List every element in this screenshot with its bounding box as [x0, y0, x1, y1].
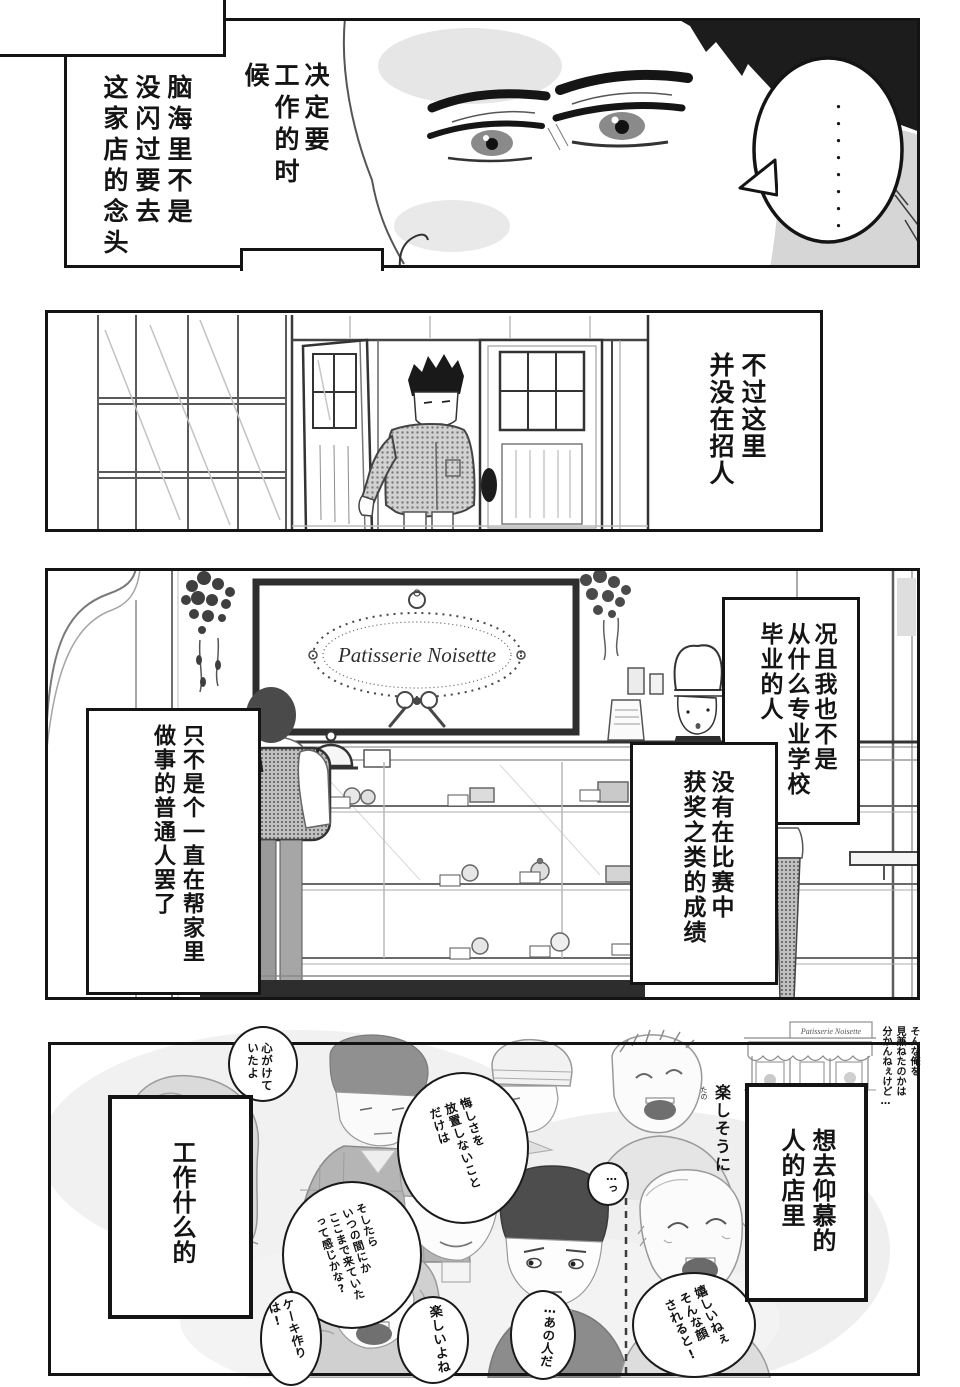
wall-frame-2: [650, 674, 663, 694]
hanging-plant-left: [181, 571, 235, 692]
furigana-tano: たの: [698, 1086, 708, 1106]
chef-figure: [674, 645, 722, 744]
manga-page: { "colors": { "ink": "#141414", "paper":…: [0, 0, 960, 1378]
storefront-sign-text: Patisserie Noisette: [800, 1027, 862, 1036]
shop-sign-board: Patisserie Noisette: [256, 582, 576, 732]
wall-frame-1: [628, 668, 644, 694]
counter-box: [364, 750, 390, 767]
narration-box-admire: 想去仰慕的 人的店里: [775, 1128, 837, 1268]
patisserie-sign-text: Patisserie Noisette: [337, 643, 496, 667]
aside-text-laughing: 楽しそうに: [707, 1084, 731, 1184]
speech-bubble-tsu-text: …っ: [600, 1170, 618, 1200]
narration-box-decided: 决定要 工作的时候: [270, 62, 330, 212]
narration-box-thought: 脑海里不是 没闪过要去 这家店的念头: [98, 74, 194, 264]
panel-1-notch-cutout: [240, 248, 384, 271]
speech-bubble-mindful-text: 心がけて いたよ: [244, 1042, 274, 1102]
narration-box-not-hiring: 不过这里 并没在招人: [704, 352, 768, 512]
aside-text-top-right: そんな俺を 見兼ねたのかは 分かんねぇけど…: [878, 1026, 920, 1146]
door-handle: [481, 468, 497, 502]
narration-box-school: 况且我也不是 从什么专业学校 毕业的人: [755, 622, 836, 812]
hanging-plant-right: [580, 569, 631, 660]
silence-dots-text: ・・・・・・・・: [818, 100, 844, 220]
narration-box-awards: 没有在比赛中 获奖之类的成绩: [678, 770, 734, 970]
menu-stand: [608, 700, 644, 740]
wall-shelf: [850, 852, 918, 880]
narration-box-work: 工作什么的: [165, 1140, 196, 1280]
person-in-doorway: [359, 354, 475, 532]
panel-1-step-cutout: [0, 0, 226, 57]
narration-box-ordinary: 只不是个一直在帮家里 做事的普通人罢了: [148, 724, 206, 986]
storefront-sketch: Patisserie Noisette: [744, 1022, 876, 1090]
